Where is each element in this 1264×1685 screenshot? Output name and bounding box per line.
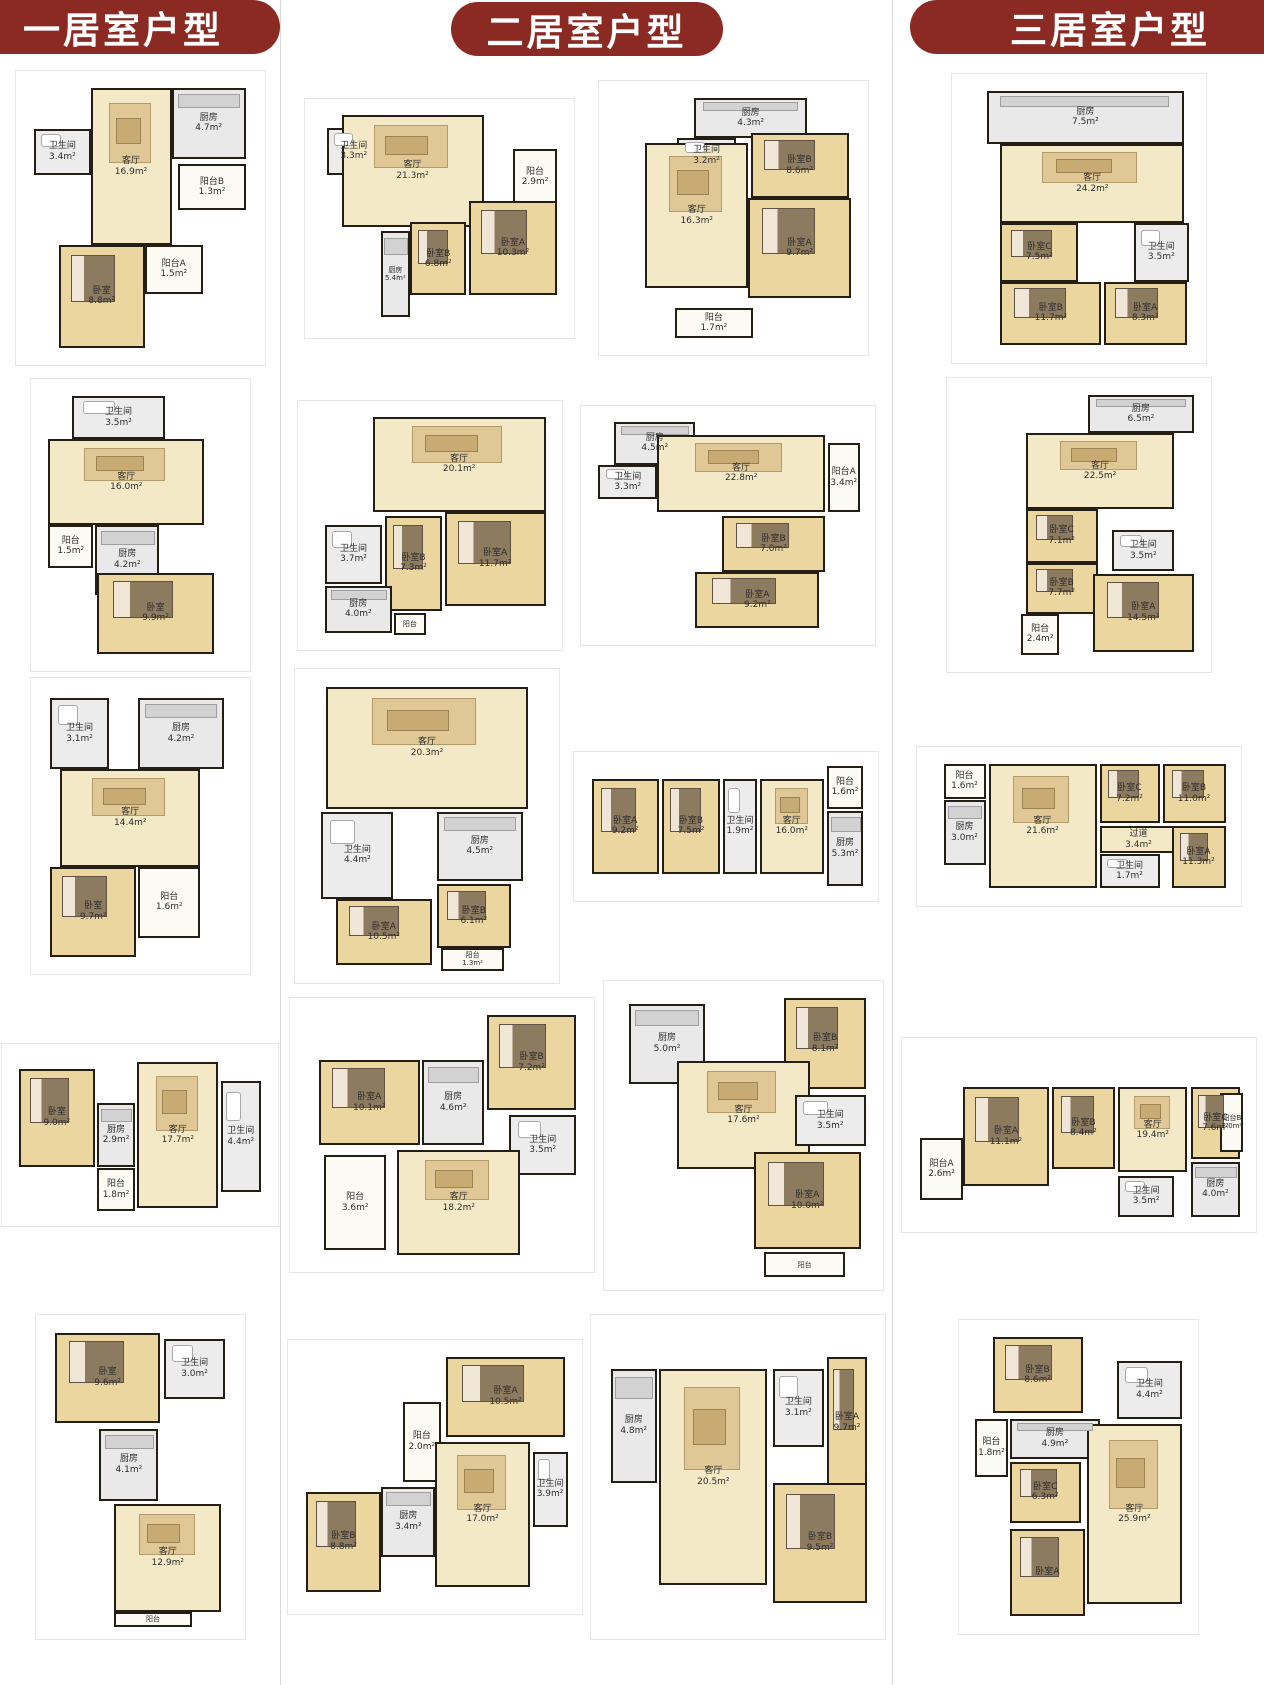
room-balcony: 阳台B2.0m² [1220, 1093, 1243, 1153]
room-name: 客厅 [783, 816, 801, 826]
room-bath: 卫生间1.7m² [1100, 854, 1160, 888]
room-bed: 卧室C7.1m² [1026, 509, 1098, 563]
room-name: 卧室A [372, 922, 396, 932]
room-area: 1.6m² [951, 781, 978, 791]
floorplan-card[interactable]: 厨房7.5m²客厅24.2m²卧室C7.5m²卫生间3.5m²卧室B11.7m²… [951, 73, 1207, 364]
room-name: 卧室A [1035, 1567, 1059, 1577]
floorplan-drawing: 厨房4.8m²客厅20.5m²卫生间3.1m²卧室A9.7m²卧室B9.5m² [603, 1327, 873, 1627]
room-kitchen: 厨房4.0m² [325, 586, 392, 633]
floorplan-card[interactable]: 卧室B8.6m²卫生间4.4m²阳台1.8m²厨房4.9m²卧室C6.3m²客厅… [958, 1319, 1199, 1635]
room-name: 客厅 [450, 454, 468, 464]
room-kitchen: 厨房6.5m² [1088, 395, 1194, 433]
room-name: 卫生间 [227, 1126, 254, 1136]
floorplan-card[interactable]: 卫生间3.4m²客厅16.9m²厨房4.7m²阳台B1.3m²卧室8.8m²阳台… [15, 70, 266, 366]
room-area: 8.6m² [1024, 1375, 1051, 1385]
room-balcony: 阳台 [114, 1612, 192, 1627]
room-name: 客厅 [704, 1466, 722, 1476]
room-area: 3.9m² [537, 1489, 564, 1499]
room-area: 7.2m² [518, 1063, 545, 1073]
room-area: 3.3m² [340, 151, 367, 161]
room-living: 客厅16.0m² [760, 779, 824, 874]
room-name: 阳台 [413, 1431, 431, 1441]
room-bath: 卫生间3.5m² [72, 396, 166, 439]
room-area: 10.3m² [497, 248, 529, 258]
room-living: 客厅21.3m² [342, 115, 484, 227]
room-name: 卧室C [1117, 783, 1141, 793]
room-area: 20.3m² [411, 748, 443, 758]
floorplan-card[interactable]: 客厅20.1m²卧室A11.7m²卧室B7.3m²卫生间3.7m²厨房4.0m²… [297, 400, 563, 651]
room-balcony: 阳台2.9m² [513, 149, 557, 205]
room-name: 卧室B [761, 534, 785, 544]
room-living: 客厅20.1m² [373, 417, 546, 512]
room-living: 客厅17.7m² [137, 1062, 218, 1207]
room-name: 阳台 [982, 1437, 1000, 1447]
room-name: 卫生间 [614, 472, 641, 482]
room-area: 1.9m² [727, 826, 754, 836]
floorplan-drawing: 阳台A2.6m²卧室A11.1m²卧室B8.4m²客厅19.4m²卧室C7.6m… [914, 1050, 1244, 1220]
room-name: 卫生间 [726, 816, 753, 826]
room-name: 卫生间 [1130, 540, 1157, 550]
room-area: 16.0m² [110, 482, 142, 492]
room-kitchen: 厨房4.5m² [437, 812, 523, 882]
room-area: 3.0m² [181, 1369, 208, 1379]
plan-row: 厨房7.5m²客厅24.2m²卧室C7.5m²卫生间3.5m²卧室B11.7m²… [893, 62, 1264, 374]
room-area: 20.5m² [697, 1477, 729, 1487]
room-name: 阳台B [200, 177, 224, 187]
room-balcony: 阳台 [394, 613, 425, 636]
column-three-bedroom-header: 三居室户型 [893, 0, 1264, 62]
three-bedroom-plan-list: 厨房7.5m²客厅24.2m²卧室C7.5m²卫生间3.5m²卧室B11.7m²… [893, 62, 1264, 1659]
column-two-bedroom-header: 二居室户型 [281, 0, 892, 62]
floorplan-card[interactable]: 卧室A10.1m²厨房4.6m²卧室B7.2m²卫生间3.5m²客厅18.2m²… [289, 997, 595, 1273]
room-area: 9.2m² [612, 826, 639, 836]
floorplan-drawing: 卧室9.0m²厨房2.9m²客厅17.7m²卫生间4.4m²阳台1.8m² [14, 1056, 266, 1214]
floorplan-card[interactable]: 卧室9.0m²厨房2.9m²客厅17.7m²卫生间4.4m²阳台1.8m² [1, 1043, 279, 1227]
column-title-banner-three-bedroom: 三居室户型 [910, 0, 1264, 54]
room-name: 卧室C [1033, 1482, 1057, 1492]
room-area: 1.3m² [462, 959, 483, 967]
room-bath: 卫生间3.5m² [1118, 1176, 1174, 1217]
room-area: 2.9m² [103, 1135, 130, 1145]
room-kitchen: 厨房4.8m² [611, 1369, 657, 1483]
room-name: 厨房 [1046, 1428, 1064, 1438]
room-area: 4.5m² [641, 443, 668, 453]
room-living: 客厅22.8m² [657, 435, 824, 512]
room-balcony: 阳台A3.4m² [828, 443, 860, 512]
room-area: 24.2m² [1076, 184, 1108, 194]
room-area: 17.7m² [162, 1135, 194, 1145]
room-area: 9.6m² [94, 1378, 121, 1388]
room-area: 17.6m² [727, 1115, 759, 1125]
room-area: 8.1m² [812, 1044, 839, 1054]
room-area: 7.2m² [1116, 794, 1143, 804]
floorplan-catalog-page: 一居室户型 卫生间3.4m²客厅16.9m²厨房4.7m²阳台B1.3m²卧室8… [0, 0, 1264, 1685]
room-area: 3.5m² [1148, 252, 1175, 262]
room-balcony: 阳台3.6m² [324, 1155, 386, 1250]
room-area: 16.3m² [681, 216, 713, 226]
room-area: 11.7m² [479, 559, 511, 569]
room-name: 卫生间 [529, 1135, 556, 1145]
room-name: 厨房 [1206, 1179, 1224, 1189]
room-name: 卧室B [401, 553, 425, 563]
room-area: 4.8m² [620, 1426, 647, 1436]
room-area: 21.3m² [396, 171, 428, 181]
room-area: 4.2m² [114, 560, 141, 570]
room-name: 阳台 [107, 1179, 125, 1189]
floorplan-card[interactable]: 厨房4.3m²卫生间3.2m²卧室B8.6m²客厅16.3m²卧室A9.7m²阳… [598, 80, 869, 356]
floorplan-drawing: 卧室A10.5m²阳台2.0m²厨房3.4m²客厅17.0m²卫生间3.9m²卧… [300, 1352, 570, 1602]
room-bed: 卧室A10.1m² [319, 1060, 420, 1145]
room-bed: 卧室B7.7m² [1026, 563, 1098, 614]
room-area: 5.4m² [385, 274, 406, 282]
room-area: 1.7m² [701, 323, 728, 333]
room-name: 阳台A [162, 259, 186, 269]
room-area: 1.7m² [1116, 871, 1143, 881]
room-area: 4.2m² [168, 734, 195, 744]
room-area: 7.3m² [400, 563, 427, 573]
floorplan-drawing: 厨房4.3m²卫生间3.2m²卧室B8.6m²客厅16.3m²卧室A9.7m²阳… [611, 93, 856, 343]
room-name: 卧室A [745, 590, 769, 600]
room-area: 4.9m² [1041, 1439, 1068, 1449]
room-corridor: 过道3.4m² [1100, 826, 1178, 853]
room-bed: 卧室9.0m² [19, 1069, 95, 1167]
room-living: 客厅20.3m² [326, 687, 528, 809]
room-name: 卧室A [357, 1092, 381, 1102]
room-kitchen: 厨房2.9m² [97, 1103, 135, 1166]
room-name: 客厅 [117, 472, 135, 482]
room-area: 7.5m² [678, 826, 705, 836]
room-name: 阳台B [1223, 1114, 1242, 1122]
room-name: 卫生间 [693, 145, 720, 155]
room-area: 4.4m² [227, 1137, 254, 1147]
room-name: 卧室A [1131, 602, 1155, 612]
room-balcony: 阳台2.4m² [1021, 614, 1059, 655]
room-area: 20.1m² [443, 464, 475, 474]
plan-row: 客厅20.1m²卧室A11.7m²卧室B7.3m²卫生间3.7m²厨房4.0m²… [281, 374, 892, 676]
room-area: 4.5m² [466, 846, 493, 856]
room-area: 1.6m² [156, 902, 183, 912]
room-bath: 卫生间4.4m² [1117, 1361, 1182, 1419]
room-bath: 卫生间3.0m² [164, 1339, 225, 1399]
room-bath: 卫生间3.1m² [50, 698, 109, 769]
room-name: 厨房 [120, 1454, 138, 1464]
room-name: 卧室A [1133, 303, 1157, 313]
floorplan-card[interactable]: 厨房4.5m²卫生间3.3m²客厅22.8m²阳台A3.4m²卧室B7.0m²卧… [580, 405, 876, 646]
room-name: 卧室A [795, 1190, 819, 1200]
floorplan-drawing: 卧室A10.1m²厨房4.6m²卧室B7.2m²卫生间3.5m²客厅18.2m²… [302, 1010, 582, 1260]
room-bath: 卫生间3.9m² [533, 1452, 568, 1527]
room-area: 14.4m² [114, 818, 146, 828]
room-area: 18.2m² [443, 1203, 475, 1213]
room-name: 厨房 [349, 599, 367, 609]
room-bed: 卧室B7.5m² [662, 779, 721, 874]
room-name: 卧室A [493, 1386, 517, 1396]
room-name: 卧室 [84, 901, 102, 911]
room-name: 厨房 [444, 1092, 462, 1102]
room-name: 卧室B [1071, 1118, 1095, 1128]
floorplan-card[interactable]: 厨房4.8m²客厅20.5m²卫生间3.1m²卧室A9.7m²卧室B9.5m² [590, 1314, 886, 1640]
room-area: 1.8m² [103, 1190, 130, 1200]
room-bed: 卧室C7.5m² [1000, 223, 1078, 281]
room-name: 阳台 [160, 892, 178, 902]
room-bed: 卧室B11.0m² [1163, 764, 1226, 823]
room-name: 卫生间 [344, 845, 371, 855]
room-area: 2.4m² [1027, 634, 1054, 644]
room-bed: 卧室A [1010, 1529, 1085, 1616]
plan-row: 卫生间3.3m²客厅21.3m²阳台2.9m²厨房5.4m²卧室B6.8m²卧室… [281, 62, 892, 374]
room-area: 8.6m² [786, 166, 813, 176]
room-bath: 卫生间3.5m² [1134, 223, 1189, 281]
room-name: 客厅 [122, 156, 140, 166]
column-two-bedroom: 二居室户型 卫生间3.3m²客厅21.3m²阳台2.9m²厨房5.4m²卧室B6… [280, 0, 893, 1685]
room-name: 厨房 [658, 1033, 676, 1043]
floorplan-card[interactable]: 阳台A2.6m²卧室A11.1m²卧室B8.4m²客厅19.4m²卧室C7.6m… [901, 1037, 1257, 1233]
floorplan-card[interactable]: 卫生间3.5m²客厅16.0m²阳台1.5m²厨房4.2m²卧室9.9m² [30, 378, 251, 672]
room-name: 卧室B [788, 155, 812, 165]
room-name: 厨房 [399, 1511, 417, 1521]
room-area: 4.4m² [344, 855, 371, 865]
room-bed: 卧室A8.3m² [1104, 282, 1187, 346]
room-living: 客厅17.0m² [435, 1442, 530, 1587]
room-name: 卫生间 [1116, 861, 1143, 871]
room-bed: 卧室A11.3m² [1172, 826, 1226, 888]
room-area: 5.3m² [832, 849, 859, 859]
room-living: 客厅14.4m² [60, 769, 200, 867]
room-bed: 卧室A9.7m² [748, 198, 851, 298]
room-bed: 卧室9.6m² [55, 1333, 160, 1423]
room-area: 10.0m² [791, 1201, 823, 1211]
room-name: 客厅 [418, 737, 436, 747]
room-name: 阳台A [929, 1159, 953, 1169]
floorplan-drawing: 卫生间3.4m²客厅16.9m²厨房4.7m²阳台B1.3m²卧室8.8m²阳台… [28, 83, 253, 353]
room-area: 8.8m² [88, 296, 115, 306]
room-bed: 卧室A9.2m² [592, 779, 659, 874]
room-name: 阳台 [403, 620, 417, 628]
room-area: 3.4m² [1125, 840, 1152, 850]
room-name: 客厅 [688, 205, 706, 215]
floorplan-drawing: 卧室9.6m²卫生间3.0m²厨房4.1m²客厅12.9m²阳台 [48, 1327, 233, 1627]
room-area: 1.3m² [199, 187, 226, 197]
room-area: 1.6m² [832, 787, 859, 797]
room-bed: 卧室A9.7m² [827, 1357, 868, 1489]
room-balcony: 阳台1.6m² [138, 867, 200, 938]
room-name: 阳台 [955, 771, 973, 781]
room-bath: 卫生间3.4m² [34, 129, 90, 175]
room-area: 17.0m² [466, 1514, 498, 1524]
floorplan-card[interactable]: 卧室A10.5m²阳台2.0m²厨房3.4m²客厅17.0m²卫生间3.9m²卧… [287, 1339, 583, 1615]
room-area: 3.4m² [49, 152, 76, 162]
room-area: 3.5m² [1130, 551, 1157, 561]
room-area: 9.2m² [744, 600, 771, 610]
room-area: 4.0m² [1202, 1189, 1229, 1199]
room-bed: 卧室9.9m² [97, 573, 214, 653]
room-area: 4.6m² [440, 1103, 467, 1113]
room-area: 10.1m² [353, 1103, 385, 1113]
room-area: 7.5m² [1072, 117, 1099, 127]
room-living: 客厅12.9m² [114, 1504, 221, 1612]
room-name: 阳台 [526, 167, 544, 177]
room-living: 客厅20.5m² [659, 1369, 767, 1585]
room-area: 7.1m² [1048, 536, 1075, 546]
plan-row: 卫生间3.5m²客厅16.0m²阳台1.5m²厨房4.2m²卧室9.9m² [0, 374, 280, 676]
room-bed: 卧室A10.5m² [336, 899, 432, 966]
room-bath: 卫生间3.3m² [598, 465, 657, 499]
room-name: 阳台 [798, 1261, 812, 1269]
room-area: 3.1m² [785, 1408, 812, 1418]
room-kitchen: 厨房4.3m² [694, 98, 807, 138]
room-area: 11.7m² [1035, 313, 1067, 323]
room-name: 客厅 [1125, 1504, 1143, 1514]
room-bath: 卫生间4.4m² [321, 812, 393, 899]
floorplan-card[interactable]: 卫生间3.3m²客厅21.3m²阳台2.9m²厨房5.4m²卧室B6.8m²卧室… [304, 98, 575, 339]
room-balcony: 阳台1.5m² [48, 525, 93, 568]
room-area: 25.9m² [1118, 1514, 1150, 1524]
room-name: 厨房 [1132, 404, 1150, 414]
floorplan-drawing: 厨房7.5m²客厅24.2m²卧室C7.5m²卫生间3.5m²卧室B11.7m²… [964, 86, 1194, 351]
room-bed: 卧室B8.6m² [993, 1337, 1083, 1412]
floorplan-card[interactable]: 厨房5.0m²卧室B8.1m²客厅17.6m²卫生间3.5m²卧室A10.0m²… [603, 980, 884, 1291]
room-name: 厨房 [200, 113, 218, 123]
plan-row: 卫生间3.4m²客厅16.9m²厨房4.7m²阳台B1.3m²卧室8.8m²阳台… [0, 62, 280, 374]
room-name: 客厅 [1091, 461, 1109, 471]
room-name: 卫生间 [1133, 1186, 1160, 1196]
room-name: 厨房 [646, 433, 664, 443]
floorplan-drawing: 厨房5.0m²卧室B8.1m²客厅17.6m²卫生间3.5m²卧室A10.0m²… [616, 993, 871, 1278]
room-bed: 卧室B11.7m² [1000, 282, 1101, 346]
room-living: 客厅21.6m² [989, 764, 1097, 888]
room-kitchen: 厨房5.4m² [381, 231, 410, 317]
floorplan-drawing: 厨房6.5m²客厅22.5m²卧室C7.1m²卫生间3.5m²卧室B7.7m²卧… [959, 390, 1199, 660]
room-area: 4.4m² [1136, 1390, 1163, 1400]
room-bath: 卫生间1.9m² [723, 779, 757, 874]
column-title-banner-two-bedroom: 二居室户型 [451, 2, 723, 56]
plan-row: 客厅20.3m²卫生间4.4m²厨房4.5m²卧室B6.1m²卧室A10.5m²… [281, 676, 892, 976]
room-bed: 卧室B7.2m² [487, 1015, 577, 1110]
room-name: 客厅 [732, 463, 750, 473]
room-area: 9.7m² [786, 248, 813, 258]
room-area: 3.5m² [1133, 1196, 1160, 1206]
room-bath: 卫生间3.7m² [325, 525, 383, 584]
plan-row: 卫生间3.1m²厨房4.2m²客厅14.4m²卧室9.7m²阳台1.6m² [0, 676, 280, 976]
room-area: 3.5m² [105, 418, 132, 428]
room-name: 卧室B [1039, 303, 1063, 313]
room-area: 1.5m² [57, 546, 84, 556]
room-area: 8.3m² [1132, 313, 1159, 323]
room-kitchen: 厨房4.2m² [138, 698, 224, 769]
room-area: 3.5m² [817, 1121, 844, 1131]
room-name: 卫生间 [66, 723, 93, 733]
room-name: 卫生间 [785, 1397, 812, 1407]
room-bath: 卫生间3.5m² [795, 1095, 866, 1146]
room-balcony: 阳台1.8m² [97, 1168, 135, 1211]
room-name: 卧室B [426, 249, 450, 259]
room-bed: 卧室A14.5m² [1093, 574, 1194, 652]
room-area: 1.8m² [978, 1448, 1005, 1458]
room-name: 客厅 [1144, 1120, 1162, 1130]
room-name: 卧室B [331, 1531, 355, 1541]
room-bed: 卧室B8.6m² [751, 133, 849, 198]
room-area: 6.5m² [1128, 414, 1155, 424]
room-bed: 卧室B6.8m² [410, 222, 466, 295]
two-bedroom-plan-list: 卫生间3.3m²客厅21.3m²阳台2.9m²厨房5.4m²卧室B6.8m²卧室… [281, 62, 892, 1659]
room-balcony: 阳台 [764, 1252, 846, 1278]
room-kitchen: 厨房4.7m² [172, 88, 246, 158]
room-name: 卧室A [788, 238, 812, 248]
plan-row: 卧室A10.5m²阳台2.0m²厨房3.4m²客厅17.0m²卫生间3.9m²卧… [281, 1294, 892, 1659]
room-name: 卧室A [835, 1412, 859, 1422]
column-one-bedroom: 一居室户型 卫生间3.4m²客厅16.9m²厨房4.7m²阳台B1.3m²卧室8… [0, 0, 280, 1685]
floorplan-card[interactable]: 卧室9.6m²卫生间3.0m²厨房4.1m²客厅12.9m²阳台 [35, 1314, 246, 1640]
room-name: 阳台A [832, 467, 856, 477]
floorplan-drawing: 阳台1.6m²厨房3.0m²客厅21.6m²卧室C7.2m²卧室B11.0m²过… [929, 759, 1229, 894]
room-area: 10.5m² [368, 932, 400, 942]
room-bath: 卫生间3.5m² [1112, 530, 1174, 571]
room-balcony: 阳台1.3m² [441, 948, 503, 971]
room-name: 客厅 [404, 160, 422, 170]
floorplan-drawing: 卫生间3.1m²厨房4.2m²客厅14.4m²卧室9.7m²阳台1.6m² [43, 690, 238, 962]
room-name: 阳台 [836, 777, 854, 787]
room-name: 卧室B [1182, 783, 1206, 793]
room-area: 6.8m² [425, 259, 452, 269]
room-area: 3.1m² [66, 734, 93, 744]
floorplan-card[interactable]: 厨房6.5m²客厅22.5m²卧室C7.1m²卫生间3.5m²卧室B7.7m²卧… [946, 377, 1212, 673]
room-area: 3.0m² [951, 833, 978, 843]
room-name: 客厅 [450, 1192, 468, 1202]
room-area: 21.6m² [1026, 826, 1058, 836]
room-name: 卧室 [147, 603, 165, 613]
room-bed: 卧室A11.1m² [963, 1087, 1049, 1186]
room-area: 3.2m² [693, 156, 720, 166]
room-area: 16.0m² [776, 826, 808, 836]
plan-row: 卧室B8.6m²卫生间4.4m²阳台1.8m²厨房4.9m²卧室C6.3m²客厅… [893, 1294, 1264, 1659]
floorplan-card[interactable]: 卧室A9.2m²卧室B7.5m²卫生间1.9m²客厅16.0m²阳台1.6m²厨… [573, 751, 879, 902]
room-bed: 卧室A10.5m² [446, 1357, 565, 1437]
room-area: 3.7m² [340, 554, 367, 564]
room-bed: 卧室A9.2m² [695, 572, 819, 628]
room-name: 卫生间 [1136, 1379, 1163, 1389]
room-bed: 卧室A10.0m² [754, 1152, 861, 1249]
room-name: 厨房 [172, 723, 190, 733]
room-bath: 卫生间4.4m² [221, 1081, 261, 1192]
room-name: 阳台 [146, 1615, 160, 1623]
room-area: 2.0m² [1222, 1122, 1243, 1130]
room-name: 阳台 [346, 1192, 364, 1202]
floorplan-card[interactable]: 卫生间3.1m²厨房4.2m²客厅14.4m²卧室9.7m²阳台1.6m² [30, 677, 251, 975]
room-area: 3.4m² [830, 478, 857, 488]
room-name: 卫生间 [181, 1358, 208, 1368]
room-living: 客厅19.4m² [1118, 1087, 1187, 1172]
floorplan-card[interactable]: 客厅20.3m²卫生间4.4m²厨房4.5m²卧室B6.1m²卧室A10.5m²… [294, 668, 560, 984]
room-area: 22.5m² [1084, 471, 1116, 481]
floorplan-drawing: 厨房4.5m²卫生间3.3m²客厅22.8m²阳台A3.4m²卧室B7.0m²卧… [593, 418, 863, 633]
floorplan-drawing: 卧室A9.2m²卧室B7.5m²卫生间1.9m²客厅16.0m²阳台1.6m²厨… [586, 764, 866, 889]
room-bed: 卧室9.7m² [50, 867, 136, 957]
room-area: 11.1m² [990, 1137, 1022, 1147]
room-kitchen: 厨房3.0m² [944, 800, 986, 865]
room-area: 2.6m² [928, 1169, 955, 1179]
room-area: 6.1m² [460, 916, 487, 926]
room-kitchen: 厨房7.5m² [987, 91, 1185, 144]
room-area: 8.4m² [1070, 1128, 1097, 1138]
room-name: 卫生间 [817, 1110, 844, 1120]
floorplan-card[interactable]: 阳台1.6m²厨房3.0m²客厅21.6m²卧室C7.2m²卧室B11.0m²过… [916, 746, 1242, 907]
room-name: 卧室B [1050, 578, 1074, 588]
room-kitchen: 厨房5.3m² [827, 811, 863, 886]
plan-row: 阳台A2.6m²卧室A11.1m²卧室B8.4m²客厅19.4m²卧室C7.6m… [893, 976, 1264, 1294]
room-name: 卫生间 [340, 141, 367, 151]
room-area: 7.7m² [1048, 588, 1075, 598]
floorplan-drawing: 卫生间3.5m²客厅16.0m²阳台1.5m²厨房4.2m²卧室9.9m² [43, 391, 238, 659]
